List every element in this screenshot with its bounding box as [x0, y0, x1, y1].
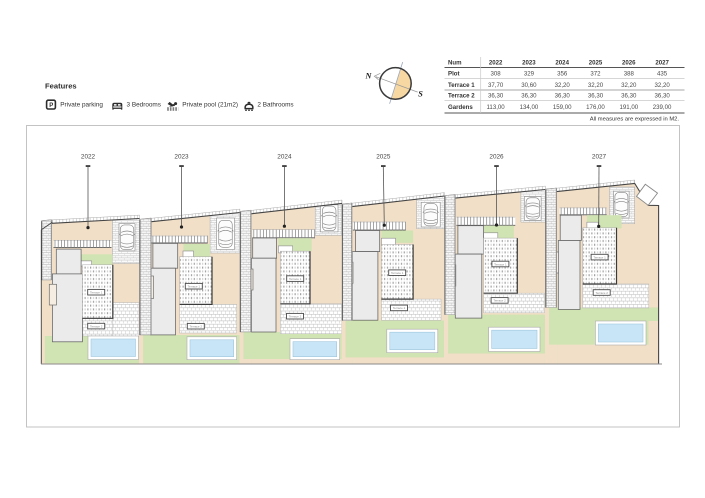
svg-text:36,30: 36,30	[621, 93, 637, 100]
svg-text:372: 372	[590, 70, 601, 77]
svg-text:All measures are expressed in: All measures are expressed in M2.	[590, 116, 680, 122]
svg-text:Private pool (21m2): Private pool (21m2)	[182, 102, 238, 109]
svg-text:2027: 2027	[592, 153, 607, 160]
svg-text:32,20: 32,20	[654, 82, 670, 89]
svg-text:Terrace 1: Terrace 1	[391, 271, 404, 275]
svg-text:Gardens: Gardens	[448, 104, 473, 111]
svg-text:2026: 2026	[489, 153, 504, 160]
svg-text:388: 388	[624, 70, 635, 77]
svg-text:Private parking: Private parking	[60, 102, 103, 109]
svg-text:Terrace 1: Terrace 1	[90, 291, 103, 295]
svg-text:2025: 2025	[376, 153, 391, 160]
svg-text:134,00: 134,00	[520, 104, 539, 111]
svg-text:37,70: 37,70	[488, 82, 504, 89]
svg-text:Terrace 1: Terrace 1	[448, 82, 475, 89]
svg-text:2024: 2024	[555, 60, 569, 67]
svg-text:159,00: 159,00	[553, 104, 572, 111]
svg-text:191,00: 191,00	[619, 104, 638, 111]
svg-text:36,30: 36,30	[521, 93, 537, 100]
svg-text:2023: 2023	[522, 60, 536, 67]
svg-text:Features: Features	[45, 82, 77, 91]
svg-text:176,00: 176,00	[586, 104, 605, 111]
svg-text:2023: 2023	[174, 153, 189, 160]
svg-text:Plot: Plot	[448, 70, 460, 77]
svg-text:2024: 2024	[277, 153, 292, 160]
svg-text:2022: 2022	[489, 60, 503, 67]
svg-text:36,30: 36,30	[654, 93, 670, 100]
svg-text:36,30: 36,30	[488, 93, 504, 100]
svg-text:Terrace 2: Terrace 2	[448, 93, 475, 100]
svg-text:2 Bathrooms: 2 Bathrooms	[257, 102, 293, 109]
svg-text:Terrace 1: Terrace 1	[289, 277, 302, 281]
svg-text:Terrace 2: Terrace 2	[90, 324, 103, 328]
svg-text:Terrace 2: Terrace 2	[190, 325, 203, 329]
svg-text:32,20: 32,20	[555, 82, 571, 89]
svg-text:36,30: 36,30	[555, 93, 571, 100]
svg-text:Terrace 2: Terrace 2	[289, 315, 302, 319]
svg-text:Terrace 1: Terrace 1	[188, 285, 201, 289]
svg-text:329: 329	[524, 70, 535, 77]
svg-text:S: S	[418, 90, 423, 99]
svg-text:Num: Num	[448, 60, 462, 67]
svg-text:Terrace 2: Terrace 2	[493, 299, 506, 303]
svg-text:3 Bedrooms: 3 Bedrooms	[127, 102, 161, 109]
svg-text:308: 308	[491, 70, 502, 77]
svg-text:435: 435	[657, 70, 668, 77]
svg-text:Terrace 2: Terrace 2	[393, 306, 406, 310]
svg-text:32,20: 32,20	[621, 82, 637, 89]
svg-text:2022: 2022	[81, 153, 96, 160]
svg-text:Terrace 1: Terrace 1	[593, 255, 606, 259]
svg-text:113,00: 113,00	[487, 104, 506, 111]
svg-text:2027: 2027	[655, 60, 669, 67]
svg-text:356: 356	[557, 70, 568, 77]
svg-text:32,20: 32,20	[588, 82, 604, 89]
svg-text:2025: 2025	[589, 60, 603, 67]
svg-text:N: N	[365, 72, 373, 81]
svg-text:P: P	[49, 103, 53, 109]
svg-text:Terrace 2: Terrace 2	[595, 291, 608, 295]
svg-text:2026: 2026	[622, 60, 636, 67]
svg-text:30,60: 30,60	[521, 82, 537, 89]
svg-text:239,00: 239,00	[653, 104, 672, 111]
svg-text:Terrace 1: Terrace 1	[494, 262, 507, 266]
svg-text:36,30: 36,30	[588, 93, 604, 100]
